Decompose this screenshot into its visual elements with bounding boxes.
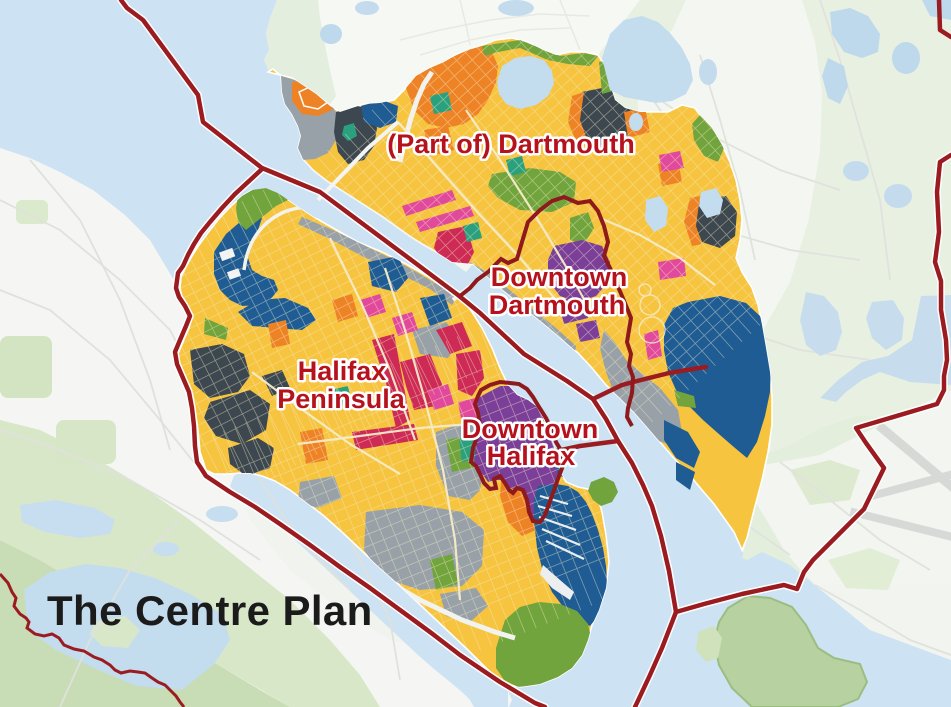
svg-text:Peninsula: Peninsula: [277, 384, 406, 414]
svg-text:Halifax: Halifax: [487, 441, 576, 471]
svg-text:(Part of) Dartmouth: (Part of) Dartmouth: [387, 129, 634, 159]
svg-text:Dartmouth: Dartmouth: [489, 290, 626, 320]
svg-text:Downtown: Downtown: [491, 262, 627, 292]
svg-text:The Centre Plan: The Centre Plan: [47, 587, 373, 634]
svg-text:Halifax: Halifax: [298, 356, 387, 386]
svg-text:Downtown: Downtown: [462, 414, 598, 444]
